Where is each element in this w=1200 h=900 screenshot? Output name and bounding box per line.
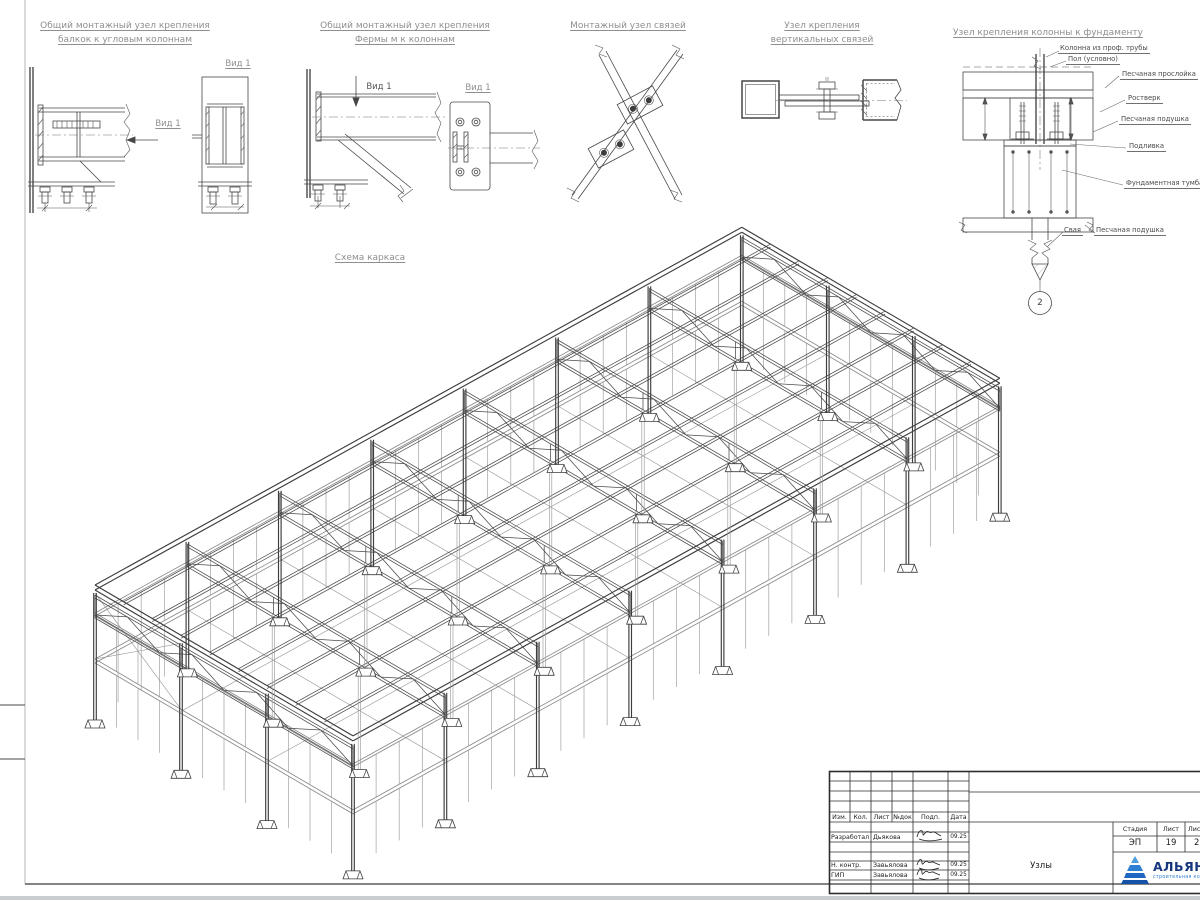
tb-role-3: ГИП (831, 871, 844, 880)
tb-name-2: Завьялова (873, 861, 908, 870)
floor-edge-beams (95, 301, 1000, 814)
tb-stage-label: Стадия (1113, 825, 1157, 834)
annotation-grout: Подливка (1127, 142, 1166, 152)
roof-trusses (95, 237, 1000, 769)
tb-col-data: Дата (948, 813, 969, 822)
interior-columns (272, 359, 822, 772)
view-direction-arrow (353, 76, 359, 106)
annotation-column: Колонна из проф. трубы (1058, 44, 1150, 54)
detail-vertical-braces (735, 70, 910, 130)
tb-role-2: Н. контр. (831, 861, 861, 870)
wall-studs (117, 271, 979, 853)
annotation-floor: Пол (условно) (1066, 55, 1120, 65)
detail-braces-node (555, 45, 740, 220)
tb-role-1: Разработал (831, 833, 869, 842)
detail-title-1: Общий монтажный узел крепления балкок к … (30, 20, 220, 47)
gusset-plate (588, 130, 634, 168)
gusset-plate (617, 86, 663, 124)
floor-beams (181, 354, 914, 762)
detail-title-4: Узел крепления вертикальных связей (749, 20, 895, 47)
annotation-rostverk: Ростверк (1126, 94, 1163, 104)
detail1-view-b (192, 77, 252, 213)
tb-sheets-label: Листов (1188, 825, 1200, 834)
tb-col-izm: Изм. (829, 813, 850, 822)
annotation-sand-cushion-2: Песчаная подушка (1094, 226, 1166, 236)
annotation-sand-layer: Песчаная прослойка (1120, 70, 1198, 80)
tb-col-podp: Подп. (913, 813, 948, 822)
tb-name-1: Дьякова (873, 833, 901, 842)
view-direction-arrow (127, 137, 158, 143)
logo-triangle-icon (1120, 855, 1150, 885)
detail2-view-b (450, 102, 538, 190)
tb-sheet-label: Лист (1157, 825, 1185, 834)
annotation-sand-cushion-1: Песчаная подушка (1119, 115, 1191, 125)
tb-date-3: 09.25 (948, 871, 969, 880)
logo-subtitle: строительная компания (1153, 875, 1200, 880)
tb-date-1: 09.25 (948, 833, 969, 842)
tb-date-2: 09.25 (948, 861, 969, 870)
tb-col-ndok: №док (892, 813, 913, 822)
tb-col-list: Лист (871, 813, 892, 822)
drawing-sheet: Общий монтажный узел крепления балкок к … (0, 0, 1200, 900)
tb-doc-title: Узлы (969, 862, 1113, 871)
tb-name-3: Завьялова (873, 871, 908, 880)
tb-sheet-value: 19 (1157, 839, 1185, 848)
annotation-pile: Свая (1062, 226, 1083, 236)
annotation-pedestal: Фундаментная тумба (1124, 179, 1200, 189)
tb-sheets-value: 2 (1194, 839, 1200, 848)
logo-name: АЛЬЯНС (1153, 859, 1200, 874)
detail-title-5: Узел крепления колонны к фундаменту (952, 27, 1144, 41)
roof-purlins (124, 244, 971, 722)
tb-col-kol: Кол. (850, 813, 871, 822)
detail-title-2: Общий монтажный узел крепления Фермы м к… (310, 20, 500, 47)
detail-title-3: Монтажный узел связей (555, 20, 701, 34)
tb-stage-value: ЭП (1113, 839, 1157, 848)
signature (917, 831, 942, 880)
